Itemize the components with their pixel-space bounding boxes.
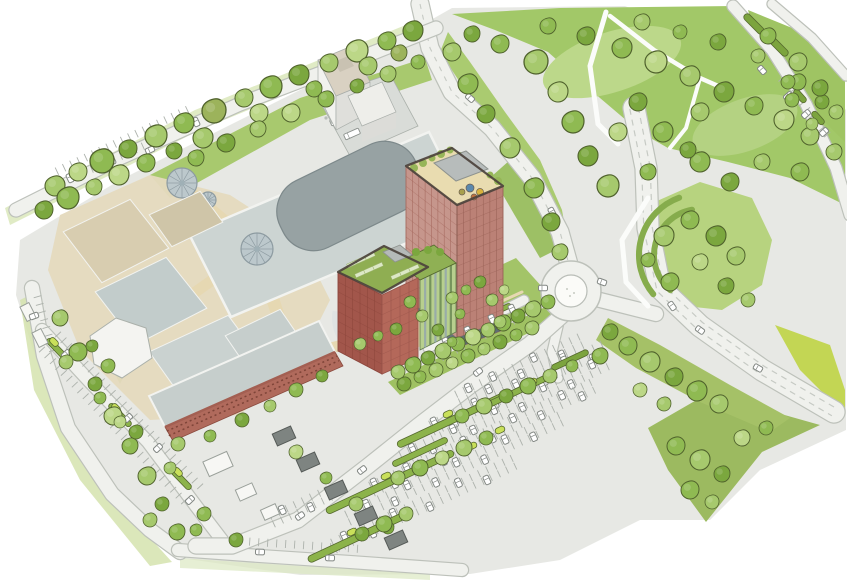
mid-rise-tower (338, 245, 428, 374)
roundabout (541, 261, 601, 321)
masterplan-svg (0, 0, 847, 588)
dome (167, 168, 197, 198)
dome (241, 233, 273, 265)
site-masterplan-illustration (0, 0, 847, 588)
